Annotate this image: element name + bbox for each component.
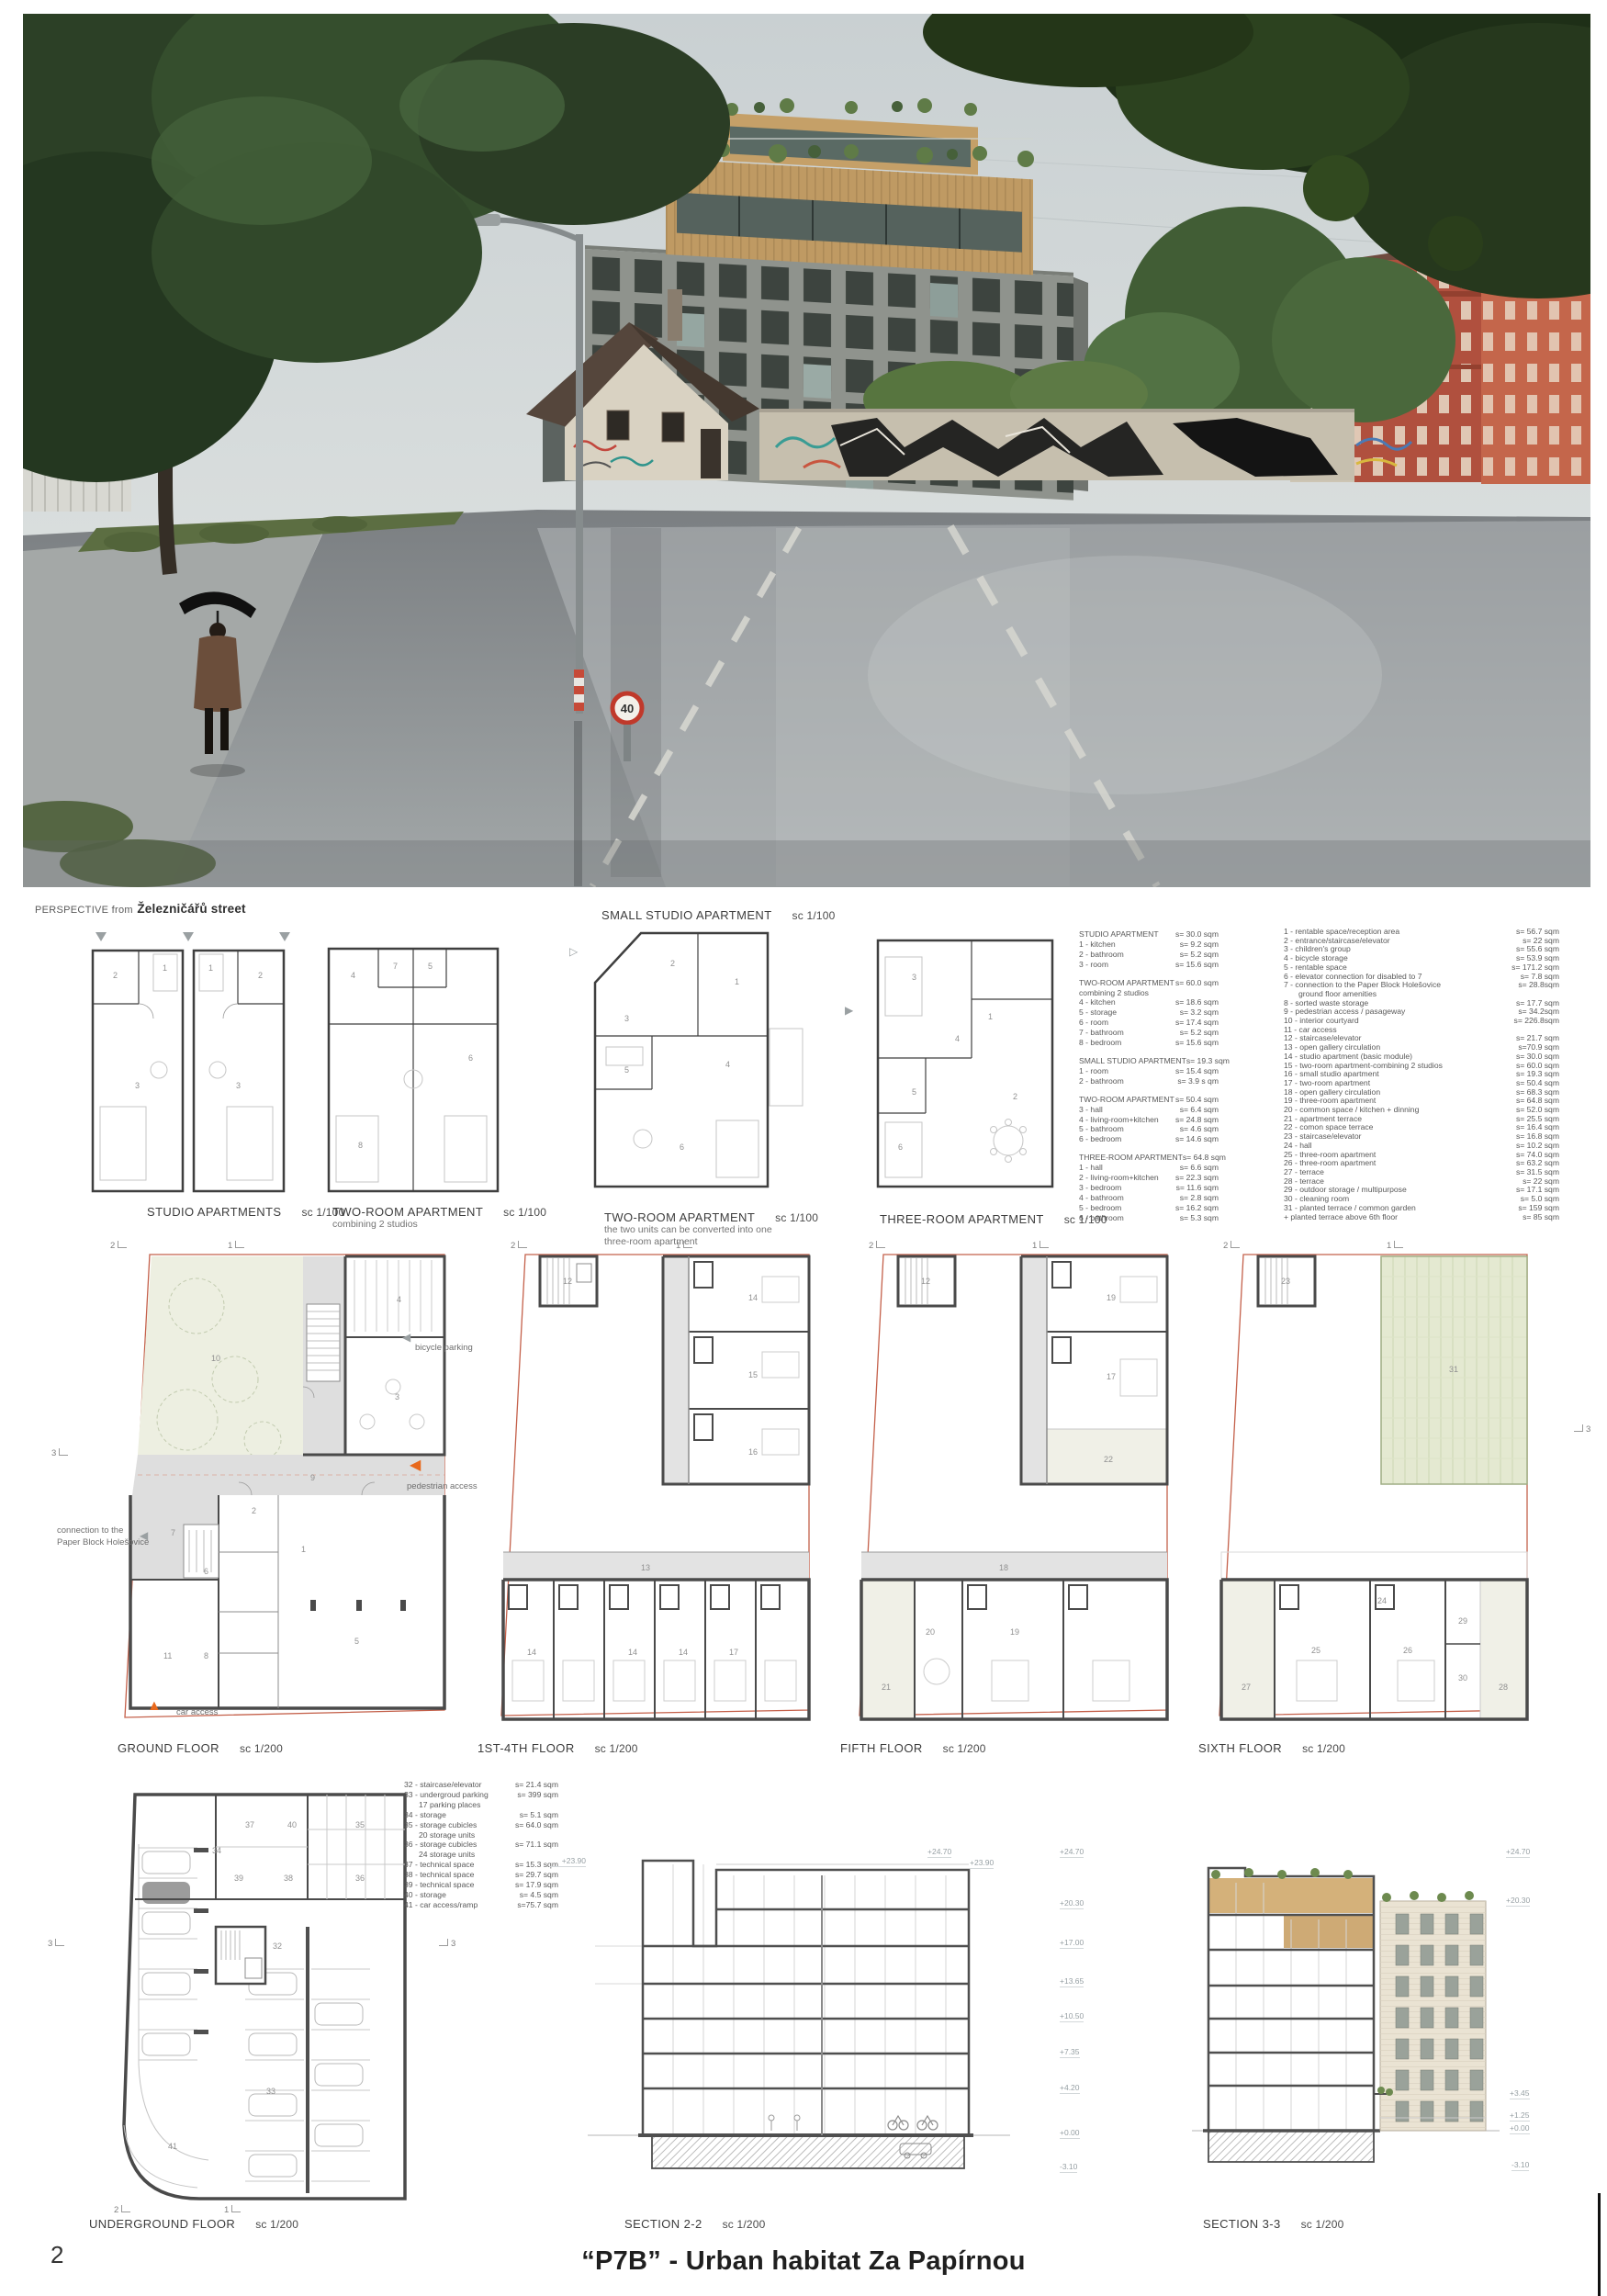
legend-row: 5 - storages= 3.2 sqm — [1079, 1007, 1219, 1018]
legend-row: 34 - storage s= 5.1 sqm — [404, 1810, 558, 1820]
perspective-caption: PERSPECTIVE from Železničářů street — [35, 901, 246, 917]
level-label: +4.20 — [1060, 2083, 1080, 2094]
section-2-2-label: SECTION 2-2sc 1/200 — [624, 2217, 766, 2231]
svg-text:9: 9 — [310, 1473, 315, 1482]
legend-sub: 24 storage units — [404, 1850, 558, 1860]
svg-text:33: 33 — [266, 2087, 275, 2096]
legend-row: 37 - technical space s= 15.3 sqm — [404, 1860, 558, 1870]
svg-text:36: 36 — [355, 1874, 365, 1883]
legend-sub: 20 storage units — [404, 1830, 558, 1840]
svg-text:1: 1 — [301, 1545, 306, 1554]
svg-text:24: 24 — [1377, 1596, 1387, 1605]
sixth-floor-plan: 23 31 24 25 26 27 28 29 30 — [1177, 1249, 1531, 1731]
legend-row: 4 - living-room+kitchens= 24.8 sqm — [1079, 1115, 1219, 1125]
three-room-label: THREE-ROOM APARTMENTsc 1/100 — [880, 1212, 1107, 1226]
svg-text:5: 5 — [912, 1087, 916, 1097]
svg-text:41: 41 — [168, 2142, 177, 2151]
svg-text:2: 2 — [1013, 1092, 1017, 1101]
svg-text:19: 19 — [1107, 1293, 1116, 1302]
level-label: +24.70 — [1506, 1847, 1530, 1858]
svg-text:26: 26 — [1403, 1646, 1412, 1655]
svg-text:31: 31 — [1449, 1365, 1458, 1374]
section-mark-3: 3 — [48, 1934, 64, 1951]
svg-text:1: 1 — [735, 977, 739, 986]
legend-row: 6 - bedrooms= 14.6 sqm — [1079, 1134, 1219, 1144]
legend-row: 4 - kitchens= 18.6 sqm — [1079, 997, 1219, 1007]
level-label: +0.00 — [1510, 2123, 1530, 2134]
svg-text:13: 13 — [641, 1563, 650, 1572]
svg-text:6: 6 — [680, 1142, 684, 1152]
section-mark-2: 2 — [114, 2200, 130, 2217]
level-label: +13.65 — [1060, 1976, 1084, 1987]
level-label: -3.10 — [1511, 2160, 1529, 2171]
legend-row: 4 - bathrooms= 2.8 sqm — [1079, 1193, 1219, 1203]
svg-text:20: 20 — [926, 1627, 935, 1637]
svg-text:15: 15 — [748, 1370, 758, 1379]
level-label: +1.25 — [1510, 2110, 1530, 2122]
svg-text:14: 14 — [527, 1648, 536, 1657]
svg-text:17: 17 — [1107, 1372, 1116, 1381]
svg-text:2: 2 — [113, 971, 118, 980]
legend-row: 38 - technical space s= 29.7 sqm — [404, 1870, 558, 1880]
underground-floor-plan: 35 36 37 39 40 38 32 33 41 34 — [78, 1789, 418, 2212]
svg-text:34: 34 — [212, 1846, 221, 1855]
svg-text:22: 22 — [1104, 1455, 1113, 1464]
svg-text:35: 35 — [355, 1820, 365, 1829]
legend-row: 6 - rooms= 17.4 sqm — [1079, 1018, 1219, 1028]
board-title: “P7B” - Urban habitat Za Papírnou — [0, 2246, 1607, 2277]
section-3-3-label: SECTION 3-3sc 1/200 — [1203, 2217, 1344, 2231]
two-room-a-label: TWO-ROOM APARTMENTsc 1/100 combining 2 s… — [332, 1205, 546, 1231]
svg-text:1: 1 — [208, 963, 213, 973]
svg-text:4: 4 — [725, 1060, 730, 1069]
svg-text:8: 8 — [204, 1651, 208, 1660]
studio-apartments-label: STUDIO APARTMENTSsc 1/100 — [147, 1205, 344, 1219]
legend-row: 2 - bathrooms= 3.9 s qm — [1079, 1076, 1219, 1086]
legend-group: THREE-ROOM APARTMENTs= 64.8 sqm 1 - hall… — [1079, 1153, 1219, 1222]
legend-row: 36 - storage cubicles s= 71.1 sqm — [404, 1840, 558, 1850]
svg-text:14: 14 — [628, 1648, 637, 1657]
svg-text:40: 40 — [621, 702, 634, 715]
svg-text:11: 11 — [163, 1651, 172, 1660]
legend-row: 7 - bathrooms= 5.2 sqm — [1079, 1028, 1219, 1038]
svg-text:7: 7 — [393, 962, 398, 971]
legend-row: 35 - storage cubicles s= 64.0 sqm — [404, 1820, 558, 1830]
studio-apartments-plan: 1 2 3 1 2 3 — [87, 923, 312, 1199]
legend-row: + planted terrace above 6th floor s= 85 … — [1284, 1213, 1559, 1222]
bicycle-parking-arrow-icon: ◀ — [402, 1332, 410, 1343]
legend-row: 8 - bedrooms= 15.6 sqm — [1079, 1038, 1219, 1048]
graffiti-wall — [759, 409, 1411, 480]
svg-text:4: 4 — [955, 1034, 960, 1043]
legend-row: 3 - rooms= 15.6 sqm — [1079, 960, 1219, 970]
street — [23, 510, 1590, 887]
legend-row: 1 - rooms= 15.4 sqm — [1079, 1066, 1219, 1076]
legend-row: 3 - halls= 6.4 sqm — [1079, 1105, 1219, 1115]
legend-row: 33 - undergroud parking s= 399 sqm — [404, 1790, 558, 1800]
floors-1-4-plan: 12 14 15 16 13 14 14 17 14 — [459, 1249, 813, 1731]
legend-row: 32 - staircase/elevator s= 21.4 sqm — [404, 1780, 558, 1790]
svg-text:37: 37 — [245, 1820, 254, 1829]
fifth-floor-label: FIFTH FLOORsc 1/200 — [840, 1741, 986, 1755]
level-label: +24.70 — [927, 1847, 951, 1858]
car-access-arrow-icon: ▲ — [147, 1699, 162, 1714]
svg-text:16: 16 — [748, 1447, 758, 1457]
pedestrian-access-arrow-icon: ◀ — [410, 1458, 421, 1473]
underground-legend: 32 - staircase/elevator s= 21.4 sqm 33 -… — [404, 1780, 558, 1910]
legend-row: 3 - bedrooms= 11.6 sqm — [1079, 1183, 1219, 1193]
entry-arrow-icon: ▶ — [845, 1005, 853, 1016]
legend-row: 2 - living-room+kitchens= 22.3 sqm — [1079, 1173, 1219, 1183]
svg-text:23: 23 — [1281, 1277, 1290, 1286]
floors-1-4-label: 1ST-4TH FLOORsc 1/200 — [478, 1741, 638, 1755]
bicycles-glyph — [888, 2116, 938, 2130]
legend-row: 5 - bedrooms= 16.2 sqm — [1079, 1203, 1219, 1213]
legend-row: 5 - bathrooms= 4.6 sqm — [1079, 1124, 1219, 1134]
legend-group: TWO-ROOM APARTMENTs= 50.4 sqm 3 - halls=… — [1079, 1095, 1219, 1145]
legend-row: 2 - bathrooms= 5.2 sqm — [1079, 950, 1219, 960]
svg-text:5: 5 — [624, 1065, 629, 1075]
svg-text:2: 2 — [258, 971, 263, 980]
legend-row: 6 - bathrooms= 5.3 sqm — [1079, 1213, 1219, 1223]
underground-floor-label: UNDERGROUND FLOORsc 1/200 — [89, 2217, 298, 2231]
level-label: +23.90 — [549, 1856, 586, 1867]
svg-text:3: 3 — [624, 1014, 629, 1023]
svg-text:6: 6 — [898, 1142, 903, 1152]
svg-text:39: 39 — [234, 1874, 243, 1883]
sixth-floor-label: SIXTH FLOORsc 1/200 — [1198, 1741, 1345, 1755]
svg-text:3: 3 — [236, 1081, 241, 1090]
svg-text:17: 17 — [729, 1648, 738, 1657]
svg-text:5: 5 — [428, 962, 433, 971]
legend-group-note: combining 2 studios — [1079, 988, 1219, 998]
level-label: +0.00 — [1060, 2128, 1080, 2139]
caption-prefix: PERSPECTIVE from — [35, 905, 133, 916]
legend-row: 1 - halls= 6.6 sqm — [1079, 1163, 1219, 1173]
section-mark-3: 3 — [439, 1934, 455, 1951]
entry-arrow-icon: ▷ — [569, 946, 578, 957]
svg-text:1: 1 — [988, 1012, 993, 1021]
svg-text:19: 19 — [1010, 1627, 1019, 1637]
striped-post — [574, 670, 584, 711]
presentation-board: 40 — [0, 0, 1607, 2296]
level-label: +23.90 — [970, 1858, 994, 1869]
level-label: -3.10 — [1060, 2162, 1077, 2173]
caption-street: Železničářů street — [137, 902, 245, 916]
svg-text:5: 5 — [354, 1637, 359, 1646]
svg-text:12: 12 — [563, 1277, 572, 1286]
fifth-floor-plan: 12 19 17 22 18 20 19 21 — [817, 1249, 1171, 1731]
svg-text:28: 28 — [1499, 1683, 1508, 1692]
svg-text:30: 30 — [1458, 1673, 1467, 1683]
svg-text:6: 6 — [468, 1053, 473, 1063]
apartment-legend: STUDIO APARTMENTs= 30.0 sqm 1 - kitchens… — [1079, 929, 1219, 1232]
figure-glyphs — [769, 2115, 800, 2131]
connection-annotation: connection to the Paper Block Holešovice — [57, 1525, 149, 1548]
legend-sub: 17 parking places — [404, 1800, 558, 1810]
section-3-3-drawing — [1192, 1846, 1500, 2195]
svg-text:38: 38 — [284, 1874, 293, 1883]
svg-text:3: 3 — [912, 973, 916, 982]
trim-mark — [1598, 2193, 1601, 2296]
ground-floor-label: GROUND FLOORsc 1/200 — [118, 1741, 283, 1755]
svg-text:40: 40 — [287, 1820, 297, 1829]
level-label: +20.30 — [1506, 1896, 1530, 1907]
legend-row: 39 - technical space s= 17.9 sqm — [404, 1880, 558, 1890]
three-room-plan: 1 2 3 4 5 6 — [871, 920, 1063, 1196]
level-label: +17.00 — [1060, 1938, 1084, 1949]
level-label: +10.50 — [1060, 2011, 1084, 2022]
svg-text:2: 2 — [252, 1506, 256, 1515]
legend-row: 27 - terrace s= 31.5 sqm — [1284, 1168, 1559, 1177]
legend-group: TWO-ROOM APARTMENTs= 60.0 sqm combining … — [1079, 978, 1219, 1048]
level-label: +20.30 — [1060, 1898, 1084, 1909]
svg-text:27: 27 — [1242, 1683, 1251, 1692]
svg-text:4: 4 — [397, 1295, 401, 1304]
legend-group: STUDIO APARTMENTs= 30.0 sqm 1 - kitchens… — [1079, 929, 1219, 970]
two-room-b-label: TWO-ROOM APARTMENTsc 1/100 the two units… — [604, 1210, 818, 1248]
svg-text:4: 4 — [351, 971, 355, 980]
legend-row: 40 - storage s= 4.5 sqm — [404, 1890, 558, 1900]
svg-text:12: 12 — [921, 1277, 930, 1286]
svg-text:10: 10 — [211, 1354, 220, 1363]
car-access-annotation: car access — [176, 1706, 218, 1718]
two-room-b-plan: 1 2 3 4 5 6 — [588, 918, 817, 1199]
svg-text:8: 8 — [358, 1141, 363, 1150]
section-2-2-drawing — [588, 1837, 1010, 2195]
svg-text:1: 1 — [163, 963, 167, 973]
svg-text:7: 7 — [171, 1528, 175, 1537]
perspective-photo: 40 — [23, 14, 1590, 887]
level-label: +24.70 — [1060, 1847, 1084, 1858]
two-room-a-plan: 4 5 6 7 8 — [323, 923, 507, 1199]
legend-group: SMALL STUDIO APARTMENTs= 19.3 sqm 1 - ro… — [1079, 1056, 1219, 1086]
svg-text:21: 21 — [882, 1683, 891, 1692]
section-mark-3: 3 — [1574, 1420, 1590, 1436]
svg-text:32: 32 — [273, 1941, 282, 1951]
svg-text:29: 29 — [1458, 1616, 1467, 1626]
svg-text:25: 25 — [1311, 1646, 1320, 1655]
svg-text:2: 2 — [670, 959, 675, 968]
legend-row: 1 - kitchens= 9.2 sqm — [1079, 940, 1219, 950]
svg-text:3: 3 — [395, 1392, 399, 1401]
section-mark-3: 3 — [51, 1444, 68, 1460]
building-legend: 1 - rentable space/reception area s= 56.… — [1284, 928, 1559, 1221]
svg-text:18: 18 — [999, 1563, 1008, 1572]
connection-arrow-icon: ◀ — [140, 1530, 148, 1541]
section-mark-1: 1 — [224, 2200, 241, 2217]
svg-text:14: 14 — [748, 1293, 758, 1302]
svg-text:3: 3 — [135, 1081, 140, 1090]
ground-floor-plan: 10 4 3 9 2 7 6 8 11 5 1 — [81, 1249, 448, 1731]
legend-row: 41 - car access/ramp s=75.7 sqm — [404, 1900, 558, 1910]
svg-text:6: 6 — [204, 1567, 208, 1576]
svg-text:14: 14 — [679, 1648, 688, 1657]
level-label: +7.35 — [1060, 2047, 1080, 2058]
level-label: +3.45 — [1510, 2088, 1530, 2099]
